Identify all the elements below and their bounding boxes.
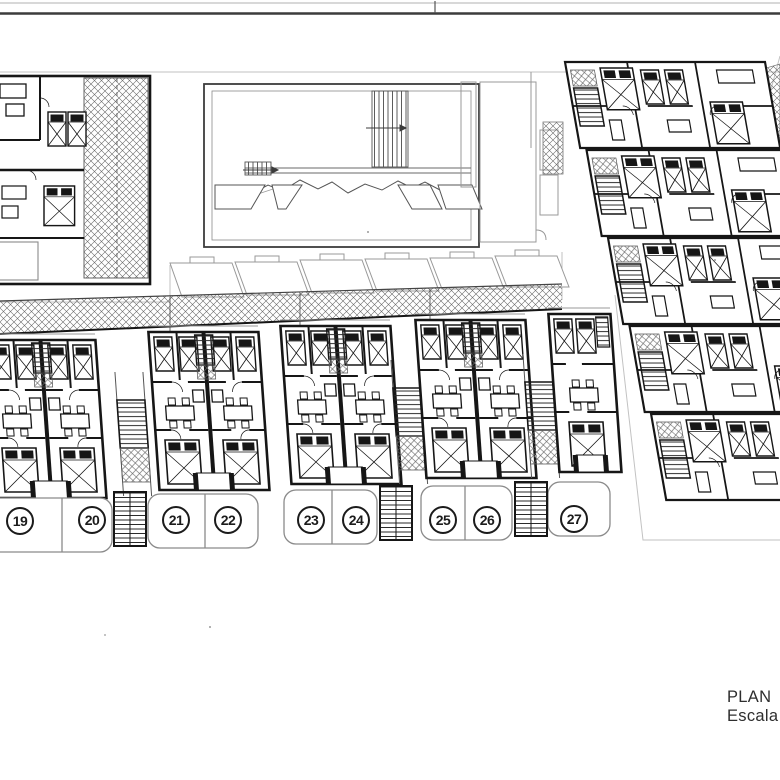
unit-row xyxy=(0,308,621,498)
site-plan-canvas xyxy=(0,0,780,780)
unit-badge-24: 24 xyxy=(342,506,370,534)
plan-title-text: PLAN xyxy=(727,688,778,707)
plan-scale-text: Escala xyxy=(727,707,778,726)
unit-block-27 xyxy=(548,308,621,472)
unit-block-19-20 xyxy=(0,334,106,498)
titleblock: PLAN Escala xyxy=(727,688,778,726)
unit-badge-25: 25 xyxy=(429,506,457,534)
right-building-cluster xyxy=(630,326,780,412)
unit-block-23-24 xyxy=(280,320,401,484)
unit-badge-20: 20 xyxy=(78,506,106,534)
pool-stairs-small xyxy=(245,162,271,175)
right-building-cluster xyxy=(651,414,780,500)
unit-badge-27: 27 xyxy=(560,505,588,533)
unit-badge-23: 23 xyxy=(297,506,325,534)
unit-block-25-26 xyxy=(415,314,536,478)
right-building-cluster xyxy=(608,238,780,324)
unit-badge-19: 19 xyxy=(6,507,34,535)
top-left-building xyxy=(0,76,150,284)
unit-badge-26: 26 xyxy=(473,506,501,534)
page-frame xyxy=(0,1,780,14)
right-building-cluster xyxy=(587,150,780,236)
amenity-terrace-building xyxy=(204,84,482,247)
stair-shaft xyxy=(115,372,152,496)
scanned-floor-plan-page: 19 20 21 22 23 24 25 26 27 PLAN Escala xyxy=(0,0,780,780)
unit-block-21-22 xyxy=(148,326,269,490)
right-building-cluster xyxy=(565,62,780,148)
unit-badge-22: 22 xyxy=(214,506,242,534)
unit-badge-21: 21 xyxy=(162,506,190,534)
terrace-hatch-topleft xyxy=(84,78,148,278)
